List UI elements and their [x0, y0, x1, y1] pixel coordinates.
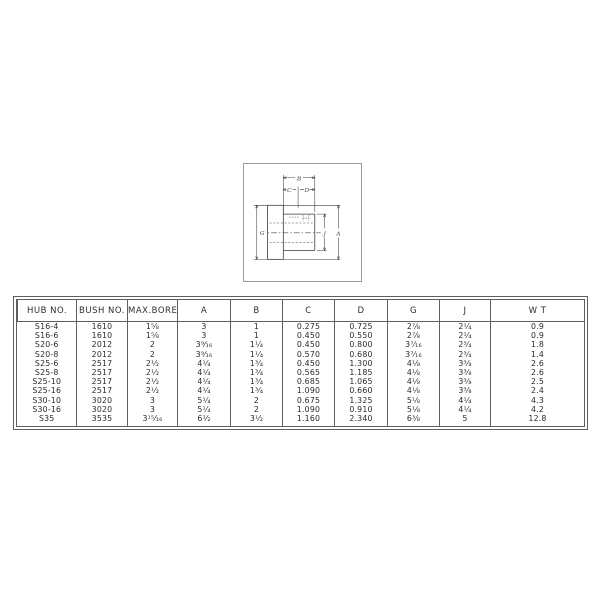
cell-wt: 12.8 — [491, 414, 585, 426]
cell-bush-no: 3535 — [77, 414, 128, 426]
cell-c: 0.450 — [283, 331, 335, 340]
cell-b: 2 — [231, 396, 283, 405]
cell-a: 3 — [178, 322, 231, 332]
table-header: HUB NO. BUSH NO. MAX.BORE A B C D G — [18, 300, 585, 322]
cell-d: 0.680 — [335, 350, 388, 359]
cell-a: 5¹⁄₄ — [178, 405, 231, 414]
cell-g: 6³⁄₈ — [388, 414, 440, 426]
cell-a: 4¹⁄₄ — [178, 386, 231, 395]
cell-max-bore: 3¹⁵⁄₁₆ — [128, 414, 178, 426]
dimension-table-frame: HUB NO. BUSH NO. MAX.BORE A B C D G — [13, 296, 588, 430]
table-body: S16-4 1610 1⁵⁄₈ 3 1 0.275 0.725 2⁷⁄₈ 2¹⁄… — [18, 322, 585, 427]
cell-g: 5¹⁄₈ — [388, 405, 440, 414]
cell-j: 2¹⁄₄ — [440, 322, 491, 332]
hidden-lines — [260, 215, 321, 243]
table-row: S16-4 1610 1⁵⁄₈ 3 1 0.275 0.725 2⁷⁄₈ 2¹⁄… — [18, 322, 585, 332]
cell-d: 1.300 — [335, 359, 388, 368]
cell-c: 0.450 — [283, 359, 335, 368]
dim-label-a: A — [335, 231, 340, 237]
cell-hub-no: S25-16 — [18, 386, 77, 395]
cell-g: 4¹⁄₈ — [388, 359, 440, 368]
cell-c: 0.685 — [283, 377, 335, 386]
cell-b: 1³⁄₄ — [231, 368, 283, 377]
cell-max-bore: 3 — [128, 405, 178, 414]
cell-d: 0.550 — [335, 331, 388, 340]
cell-bush-no: 2517 — [77, 386, 128, 395]
cell-wt: 1.8 — [491, 340, 585, 349]
column-header: A — [178, 300, 231, 322]
column-header: D — [335, 300, 388, 322]
cell-c: 0.565 — [283, 368, 335, 377]
cell-c: 0.275 — [283, 322, 335, 332]
cell-j: 2³⁄₄ — [440, 340, 491, 349]
table-row: S35 3535 3¹⁵⁄₁₆ 6¹⁄₂ 3¹⁄₂ 1.160 2.340 6³… — [18, 414, 585, 426]
cell-max-bore: 2 — [128, 340, 178, 349]
cell-max-bore: 2 — [128, 350, 178, 359]
cell-d: 0.800 — [335, 340, 388, 349]
cell-bush-no: 3020 — [77, 396, 128, 405]
cell-wt: 4.2 — [491, 405, 585, 414]
column-header: J — [440, 300, 491, 322]
cell-hub-no: S30-16 — [18, 405, 77, 414]
cell-b: 1 — [231, 331, 283, 340]
cell-b: 1³⁄₄ — [231, 377, 283, 386]
cell-g: 5¹⁄₈ — [388, 396, 440, 405]
table-row: S20-6 2012 2 3⁹⁄₁₆ 1¹⁄₄ 0.450 0.800 3⁷⁄₁… — [18, 340, 585, 349]
cell-hub-no: S20-6 — [18, 340, 77, 349]
cell-j: 4¹⁄₄ — [440, 405, 491, 414]
cell-wt: 2.6 — [491, 359, 585, 368]
table-row: S25-6 2517 2¹⁄₂ 4¹⁄₄ 1³⁄₄ 0.450 1.300 4¹… — [18, 359, 585, 368]
table-row: S16-6 1610 1⁵⁄₈ 3 1 0.450 0.550 2⁷⁄₈ 2¹⁄… — [18, 331, 585, 340]
cell-d: 1.325 — [335, 396, 388, 405]
dim-label-b: B — [296, 176, 302, 182]
table-row: S30-16 3020 3 5¹⁄₄ 2 1.090 0.910 5¹⁄₈ 4¹… — [18, 405, 585, 414]
cell-a: 3⁹⁄₁₆ — [178, 350, 231, 359]
cell-wt: 0.9 — [491, 322, 585, 332]
cell-bush-no: 1610 — [77, 322, 128, 332]
column-header: B — [231, 300, 283, 322]
cell-d: 1.065 — [335, 377, 388, 386]
cell-b: 1³⁄₄ — [231, 386, 283, 395]
cell-wt: 0.9 — [491, 331, 585, 340]
cell-wt: 2.4 — [491, 386, 585, 395]
cell-max-bore: 2¹⁄₂ — [128, 386, 178, 395]
cell-bush-no: 2517 — [77, 368, 128, 377]
cell-g: 3⁷⁄₁₆ — [388, 340, 440, 349]
cell-bush-no: 2517 — [77, 359, 128, 368]
cell-j: 3³⁄₈ — [440, 377, 491, 386]
cell-b: 1³⁄₄ — [231, 359, 283, 368]
cell-g: 4¹⁄₈ — [388, 368, 440, 377]
cell-hub-no: S25-6 — [18, 359, 77, 368]
dim-label-g: G — [260, 231, 265, 237]
cell-d: 0.725 — [335, 322, 388, 332]
cell-bush-no: 2012 — [77, 350, 128, 359]
table-row: S20-8 2012 2 3⁹⁄₁₆ 1¹⁄₄ 0.570 0.680 3⁷⁄₁… — [18, 350, 585, 359]
cell-hub-no: S30-10 — [18, 396, 77, 405]
column-header: W T — [491, 300, 585, 322]
table-row: S30-10 3020 3 5¹⁄₄ 2 0.675 1.325 5¹⁄₈ 4¹… — [18, 396, 585, 405]
cell-c: 1.090 — [283, 386, 335, 395]
cell-g: 4¹⁄₈ — [388, 386, 440, 395]
cell-j: 3³⁄₈ — [440, 368, 491, 377]
cell-wt: 4.3 — [491, 396, 585, 405]
table-row: S25-8 2517 2¹⁄₂ 4¹⁄₄ 1³⁄₄ 0.565 1.185 4¹… — [18, 368, 585, 377]
cell-b: 2 — [231, 405, 283, 414]
cell-bush-no: 2517 — [77, 377, 128, 386]
cell-wt: 2.5 — [491, 377, 585, 386]
column-header: BUSH NO. — [77, 300, 128, 322]
dimension-labels: B C D G J A — [260, 176, 341, 237]
cell-j: 2³⁄₄ — [440, 350, 491, 359]
cell-max-bore: 2¹⁄₂ — [128, 368, 178, 377]
table-row: S25-16 2517 2¹⁄₂ 4¹⁄₄ 1³⁄₄ 1.090 0.660 4… — [18, 386, 585, 395]
cell-wt: 1.4 — [491, 350, 585, 359]
cell-a: 4¹⁄₄ — [178, 368, 231, 377]
cell-a: 5¹⁄₄ — [178, 396, 231, 405]
cell-hub-no: S25-10 — [18, 377, 77, 386]
cell-c: 0.675 — [283, 396, 335, 405]
cell-a: 3 — [178, 331, 231, 340]
cell-wt: 2.6 — [491, 368, 585, 377]
cell-bush-no: 1610 — [77, 331, 128, 340]
cell-b: 1¹⁄₄ — [231, 350, 283, 359]
cell-max-bore: 2¹⁄₂ — [128, 359, 178, 368]
hub-drawing-svg: B C D G J A — [244, 164, 361, 281]
cell-d: 0.660 — [335, 386, 388, 395]
dim-label-c: C — [287, 188, 292, 194]
cell-j: 2¹⁄₄ — [440, 331, 491, 340]
table-header-row: HUB NO. BUSH NO. MAX.BORE A B C D G — [18, 300, 585, 322]
cell-b: 1¹⁄₄ — [231, 340, 283, 349]
cell-a: 6¹⁄₂ — [178, 414, 231, 426]
column-header: G — [388, 300, 440, 322]
cell-j: 5 — [440, 414, 491, 426]
cell-j: 4¹⁄₄ — [440, 396, 491, 405]
cell-c: 1.160 — [283, 414, 335, 426]
cell-d: 2.340 — [335, 414, 388, 426]
label-backgrounds — [259, 228, 342, 237]
part-outline — [268, 205, 315, 259]
table-row: S25-10 2517 2¹⁄₂ 4¹⁄₄ 1³⁄₄ 0.685 1.065 4… — [18, 377, 585, 386]
cell-a: 3⁹⁄₁₆ — [178, 340, 231, 349]
cell-hub-no: S25-8 — [18, 368, 77, 377]
cell-max-bore: 2¹⁄₂ — [128, 377, 178, 386]
cell-bush-no: 3020 — [77, 405, 128, 414]
cell-c: 0.450 — [283, 340, 335, 349]
cell-max-bore: 1⁵⁄₈ — [128, 331, 178, 340]
cell-d: 1.185 — [335, 368, 388, 377]
cell-c: 0.570 — [283, 350, 335, 359]
cell-hub-no: S35 — [18, 414, 77, 426]
column-header: HUB NO. — [18, 300, 77, 322]
dim-label-d: D — [303, 188, 309, 194]
cell-g: 2⁷⁄₈ — [388, 331, 440, 340]
cell-j: 3³⁄₈ — [440, 359, 491, 368]
cell-d: 0.910 — [335, 405, 388, 414]
cell-c: 1.090 — [283, 405, 335, 414]
cell-b: 3¹⁄₂ — [231, 414, 283, 426]
hub-cross-section-diagram: B C D G J A — [243, 163, 362, 282]
cell-hub-no: S16-4 — [18, 322, 77, 332]
cell-a: 4¹⁄₄ — [178, 377, 231, 386]
column-header: C — [283, 300, 335, 322]
dimension-table: HUB NO. BUSH NO. MAX.BORE A B C D G — [17, 300, 584, 426]
cell-a: 4¹⁄₄ — [178, 359, 231, 368]
cell-max-bore: 3 — [128, 396, 178, 405]
column-header: MAX.BORE — [128, 300, 178, 322]
cell-b: 1 — [231, 322, 283, 332]
cell-bush-no: 2012 — [77, 340, 128, 349]
cell-j: 3³⁄₈ — [440, 386, 491, 395]
catalog-page: B C D G J A HUB NO. — [0, 0, 600, 600]
cell-hub-no: S16-6 — [18, 331, 77, 340]
cell-g: 2⁷⁄₈ — [388, 322, 440, 332]
cell-g: 4¹⁄₈ — [388, 377, 440, 386]
dimension-lines — [254, 175, 341, 260]
cell-max-bore: 1⁵⁄₈ — [128, 322, 178, 332]
cell-g: 3⁷⁄₁₆ — [388, 350, 440, 359]
cell-hub-no: S20-8 — [18, 350, 77, 359]
